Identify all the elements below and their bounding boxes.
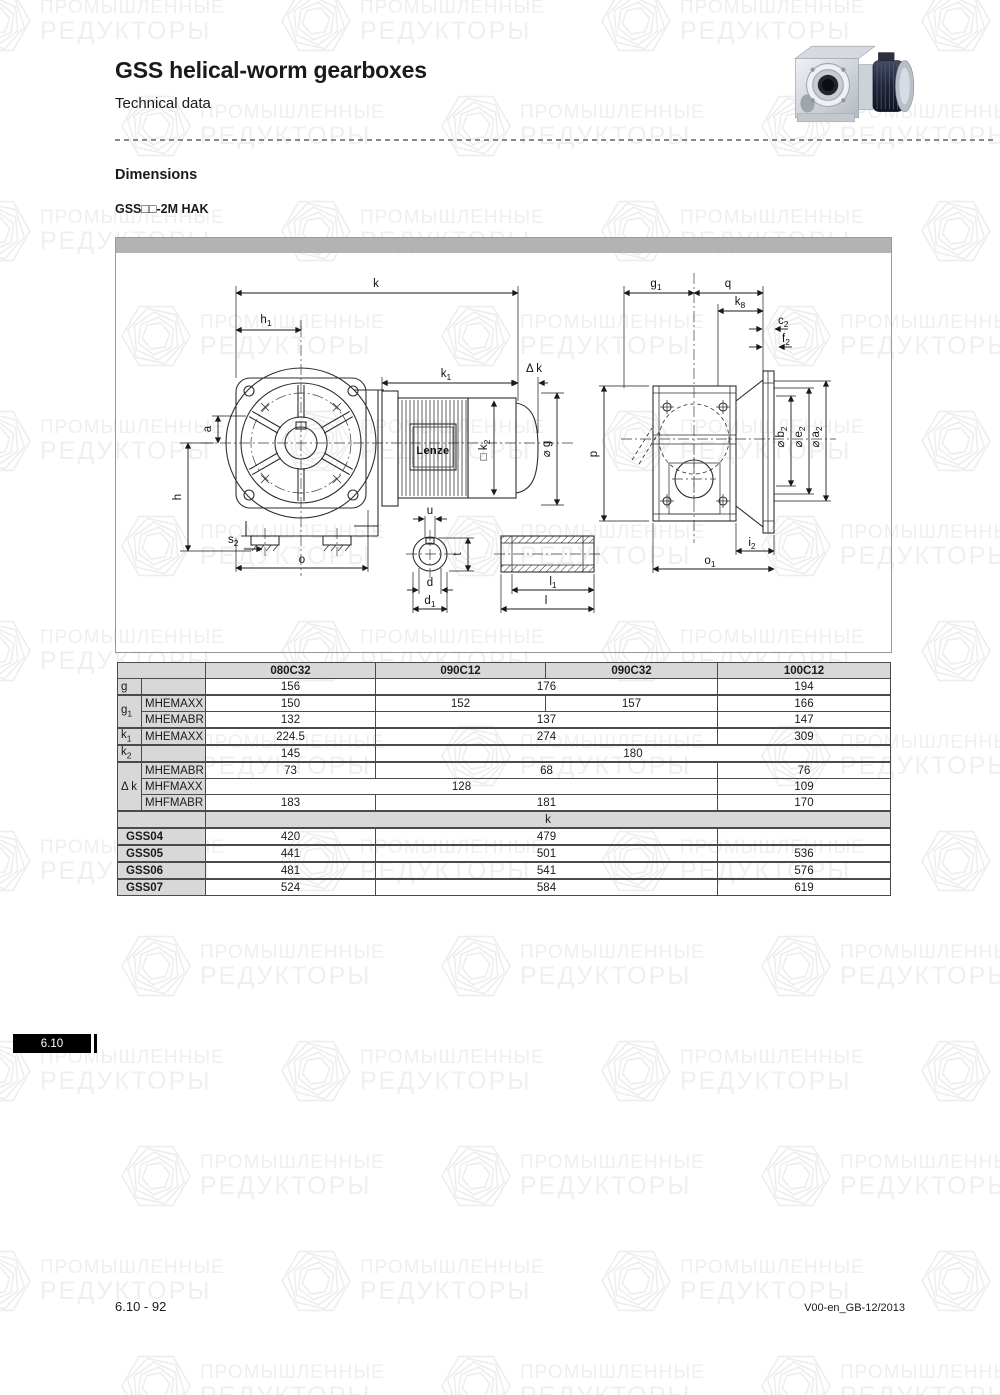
catalog-page: ПРОМЫШЛЕННЫЕРЕДУКТОРЫПРОМЫШЛЕННЫЕРЕДУКТО… — [0, 0, 1000, 1395]
dim-label-i2: i2 — [748, 537, 756, 551]
dim-g1: g1 — [118, 695, 142, 728]
watermark: ПРОМЫШЛЕННЫЕРЕДУКТОРЫ — [920, 402, 1000, 480]
side-view-dimensions: g1 q k8 c2 f2 p ⌀ b2 — [588, 278, 831, 573]
watermark: ПРОМЫШЛЕННЫЕРЕДУКТОРЫ — [920, 0, 1000, 60]
watermark: ПРОМЫШЛЕННЫЕРЕДУКТОРЫ — [760, 1347, 1000, 1395]
side-view — [621, 273, 836, 543]
k-band: k — [206, 811, 891, 828]
page-title: GSS helical-worm gearboxes — [115, 57, 427, 84]
gss04-label: GSS04 — [118, 828, 206, 845]
dim-label-k8: k8 — [735, 296, 746, 310]
dim-label-p: p — [588, 451, 600, 457]
dim-label-k2: □ k2 — [478, 439, 492, 460]
motor-adapter — [859, 65, 873, 110]
watermark: ПРОМЫШЛЕННЫЕРЕДУКТОРЫ — [920, 1242, 1000, 1320]
dim-label-a: a — [202, 425, 214, 432]
table-band-row: k — [118, 811, 891, 828]
col-header: 100C12 — [718, 663, 891, 679]
dim-label-q: q — [725, 278, 731, 290]
gss07-label: GSS07 — [118, 879, 206, 896]
shaft-section: u t d d1 — [406, 505, 474, 613]
watermark: ПРОМЫШЛЕННЫЕРЕДУКТОРЫ — [120, 927, 385, 1005]
page-subtitle: Technical data — [115, 95, 211, 112]
dim-k1: k1 — [118, 728, 142, 745]
section-heading: Dimensions — [115, 167, 197, 183]
table-row: GSS05 441 501 536 — [118, 845, 891, 862]
watermark: ПРОМЫШЛЕННЫЕРЕДУКТОРЫ — [120, 1137, 385, 1215]
dashed-separator — [115, 139, 993, 141]
dim-label-d1: d1 — [424, 595, 435, 609]
table-row: MHFMAXX 128 109 — [118, 779, 891, 795]
motor-brand-label: Lenze — [416, 445, 449, 457]
dim-label-t: t — [452, 552, 464, 556]
table-row: g 156 176 194 — [118, 679, 891, 696]
gearbox-top-face — [795, 46, 875, 58]
model-designation: GSS□□-2M HAK — [115, 202, 209, 216]
watermark: ПРОМЫШЛЕННЫЕРЕДУКТОРЫ — [280, 1242, 545, 1320]
watermark: ПРОМЫШЛЕННЫЕРЕДУКТОРЫ — [440, 1137, 705, 1215]
footer-page-number: 6.10 - 92 — [115, 1299, 166, 1314]
dim-label-f2: f2 — [782, 333, 790, 347]
dim-label-h1: h1 — [260, 314, 271, 328]
watermark: ПРОМЫШЛЕННЫЕРЕДУКТОРЫ — [920, 822, 1000, 900]
watermark: ПРОМЫШЛЕННЫЕРЕДУКТОРЫ — [0, 1242, 225, 1320]
gss06-label: GSS06 — [118, 862, 206, 879]
watermark: ПРОМЫШЛЕННЫЕРЕДУКТОРЫ — [440, 1347, 705, 1395]
drawing-title-bar — [116, 238, 891, 253]
hollow-shaft-sleeve: l1 l — [494, 536, 601, 613]
chapter-tab-bar — [94, 1034, 97, 1053]
dim-label-o: o — [299, 554, 305, 566]
watermark: ПРОМЫШЛЕННЫЕРЕДУКТОРЫ — [600, 1032, 865, 1110]
table-row: GSS06 481 541 576 — [118, 862, 891, 879]
table-row: Δ k MHEMABR 73 68 76 — [118, 762, 891, 779]
watermark: ПРОМЫШЛЕННЫЕРЕДУКТОРЫ — [920, 192, 1000, 270]
dim-k2: k2 — [118, 745, 142, 762]
col-header: 080C32 — [206, 663, 376, 679]
dim-label-a2: ⌀ a2 — [810, 426, 824, 448]
dim-g: g — [118, 679, 142, 696]
dim-label-b2: ⌀ b2 — [775, 426, 789, 448]
col-header: 090C12 — [376, 663, 546, 679]
product-photo — [781, 40, 921, 128]
dim-label-e2: ⌀ e2 — [793, 426, 807, 448]
dim-label-g1: g1 — [650, 278, 661, 292]
watermark: ПРОМЫШЛЕННЫЕРЕДУКТОРЫ — [280, 0, 545, 60]
table-row: g1 MHEMAXX 150 152 157 166 — [118, 695, 891, 712]
dim-label-l: l — [545, 595, 548, 607]
table-row: MHFMABR 183 181 170 — [118, 795, 891, 812]
dim-label-k1: k1 — [441, 368, 452, 382]
dim-label-o1: o1 — [704, 555, 715, 569]
watermark: ПРОМЫШЛЕННЫЕРЕДУКТОРЫ — [440, 87, 705, 165]
dimension-drawing: Lenze k h1 k1 Δ k — [115, 237, 892, 653]
dimension-table: 080C32 090C12 090C32 100C12 g 156 176 19… — [117, 662, 891, 896]
table-row: GSS04 420 479 — [118, 828, 891, 845]
watermark: ПРОМЫШЛЕННЫЕРЕДУКТОРЫ — [120, 1347, 385, 1395]
watermark: ПРОМЫШЛЕННЫЕРЕДУКТОРЫ — [760, 927, 1000, 1005]
footer-version: V00-en_GB-12/2013 — [700, 1302, 905, 1314]
watermark: ПРОМЫШЛЕННЫЕРЕДУКТОРЫ — [760, 1137, 1000, 1215]
dim-label-l1: l1 — [549, 576, 557, 590]
dim-label-k: k — [373, 278, 379, 290]
dim-label-u: u — [427, 505, 433, 517]
watermark: ПРОМЫШЛЕННЫЕРЕДУКТОРЫ — [280, 1032, 545, 1110]
watermark: ПРОМЫШЛЕННЫЕРЕДУКТОРЫ — [920, 612, 1000, 690]
table-row: k2 145 180 — [118, 745, 891, 762]
gss05-label: GSS05 — [118, 845, 206, 862]
chapter-tab: 6.10 — [13, 1034, 91, 1053]
dim-label-d: d — [427, 577, 433, 589]
dim-dk: Δ k — [118, 762, 142, 811]
dim-label-dk: Δ k — [526, 363, 542, 375]
table-header-row: 080C32 090C12 090C32 100C12 — [118, 663, 891, 679]
front-view-dimensions: k h1 k1 Δ k a h s2 — [172, 278, 564, 572]
table-row: MHEMABR 132 137 147 — [118, 712, 891, 729]
dim-label-g: ⌀ g — [541, 441, 553, 458]
watermark: ПРОМЫШЛЕННЫЕРЕДУКТОРЫ — [440, 927, 705, 1005]
table-row: k1 MHEMAXX 224.5 274 309 — [118, 728, 891, 745]
table-row: GSS07 524 584 619 — [118, 879, 891, 896]
dim-label-h: h — [172, 494, 184, 500]
dim-label-c2: c2 — [778, 315, 789, 329]
watermark: ПРОМЫШЛЕННЫЕРЕДУКТОРЫ — [0, 0, 225, 60]
col-header: 090C32 — [546, 663, 718, 679]
watermark: ПРОМЫШЛЕННЫЕРЕДУКТОРЫ — [920, 1032, 1000, 1110]
dim-label-s2: s2 — [228, 534, 239, 548]
